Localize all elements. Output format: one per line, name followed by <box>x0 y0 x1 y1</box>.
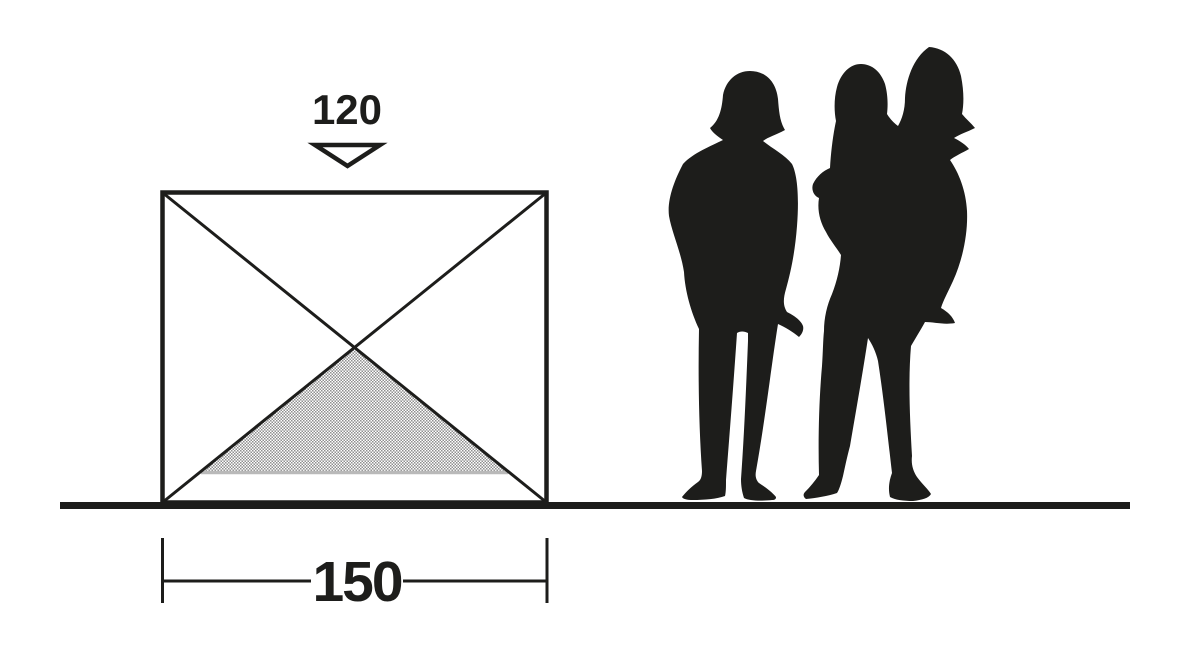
hatched-triangle <box>199 348 510 473</box>
dimension-diagram: 120 150 <box>0 0 1200 666</box>
diagram-canvas: 120 150 <box>0 0 1200 666</box>
top-dimension-label: 120 <box>312 86 382 133</box>
adult-with-child-silhouette <box>804 47 975 501</box>
adult-silhouette <box>669 71 804 501</box>
ground-line <box>60 502 1130 509</box>
scale-figures <box>669 47 975 501</box>
bottom-dimension-label: 150 <box>312 550 401 614</box>
top-dimension: 120 <box>312 86 382 166</box>
bottom-dimension: 150 <box>163 538 548 614</box>
down-arrow-icon <box>315 145 380 166</box>
